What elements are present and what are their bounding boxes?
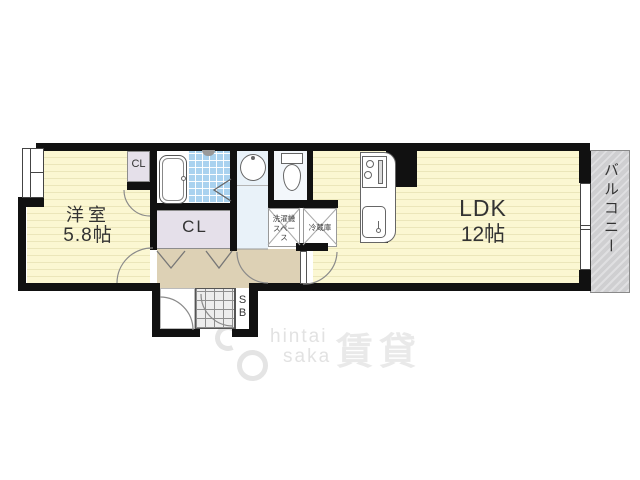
shoe-box-label: SB <box>237 294 248 320</box>
bathroom-folding-door <box>214 179 231 201</box>
washing-machine-label: 洗濯機スペース <box>271 214 297 243</box>
refrigerator-label: 冷蔵庫 <box>303 222 337 233</box>
balcony-label: バルコニー <box>597 162 621 287</box>
washbasin-door-arc <box>237 252 268 283</box>
floor-plan: hintai saka 賃貸 <box>0 0 640 480</box>
closet-folding-door-1 <box>157 251 185 268</box>
entrance-step-door-arc <box>160 297 193 330</box>
ldk-door-arc <box>303 252 337 284</box>
closet-folding-door-2 <box>206 251 232 268</box>
ldk-size: 12帖 <box>430 218 536 248</box>
main-closet-label: CL <box>155 217 235 237</box>
western-room-door-arc <box>117 248 153 283</box>
small-closet-label: CL <box>127 158 150 170</box>
western-room-size: 5.8帖 <box>40 220 136 247</box>
entrance-door-arc <box>201 294 233 326</box>
